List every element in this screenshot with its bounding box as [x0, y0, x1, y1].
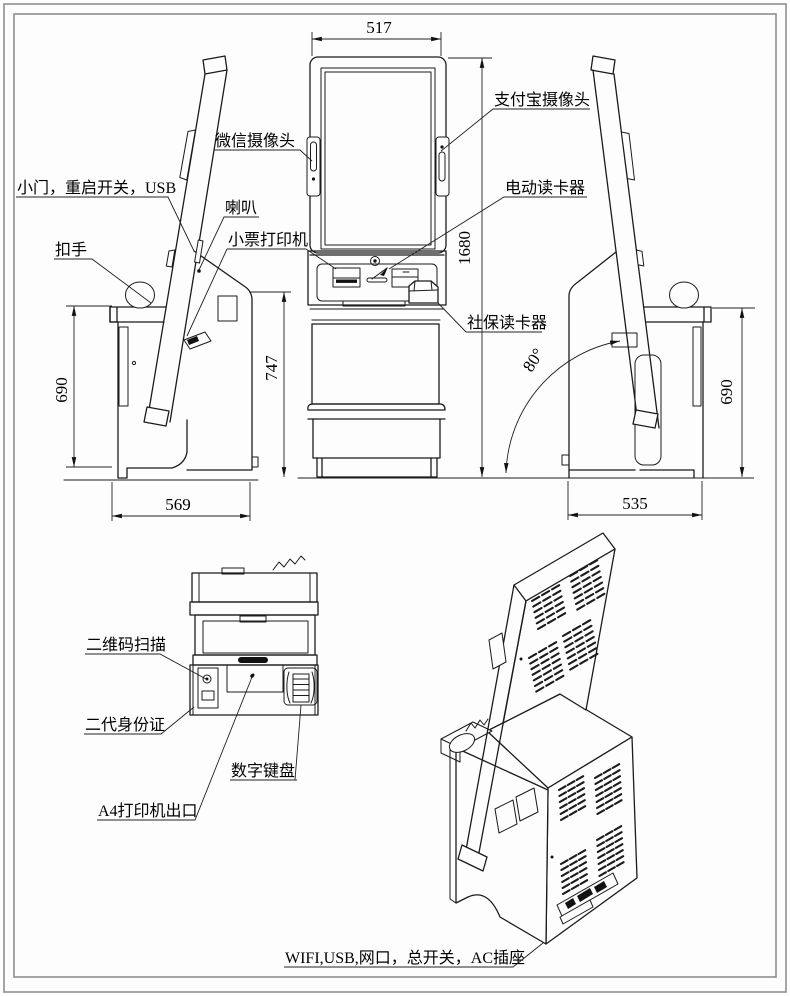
- left-console-shelf: [110, 307, 166, 322]
- label-speaker: 喇叭: [225, 199, 257, 217]
- callout-qr-scanner: 二维码扫描: [85, 636, 206, 679]
- iso-body-screw: [551, 856, 554, 859]
- right-screen-back-edge: [593, 70, 638, 424]
- leader-motor-card-reader: [389, 197, 587, 269]
- iso-body-left-edge: [450, 745, 456, 903]
- left-screen-bottom-cap: [144, 407, 169, 426]
- callout-keypad: 数字键盘: [230, 705, 301, 780]
- id-device-pad: [202, 691, 214, 700]
- callout-social-card-reader: 社保读卡器: [438, 303, 547, 332]
- dim-angle-value: 80°: [519, 345, 548, 375]
- social-reader-outline: [409, 281, 438, 303]
- top-rear-block: [192, 573, 317, 602]
- inner-border: [14, 14, 776, 977]
- label-receipt-printer: 小票打印机: [228, 231, 308, 249]
- alipay-camera-led: [440, 145, 443, 148]
- id-device-body: [198, 668, 218, 708]
- dim-535-value: 535: [622, 494, 648, 513]
- callout-alipay-camera: 支付宝摄像头: [441, 91, 590, 151]
- dim-517-value: 517: [366, 18, 392, 37]
- dim-690R-value: 690: [717, 379, 736, 405]
- leader-qr-scanner: [85, 654, 206, 679]
- front-plinth: [317, 458, 437, 477]
- top-dark-slot: [238, 657, 268, 663]
- callout-rear-ports: WIFI,USB,网口，总开关，AC插座: [284, 943, 543, 967]
- left-body-back: [187, 251, 252, 470]
- left-rear-knob: [252, 457, 258, 467]
- keypad-keys-area: [293, 674, 309, 702]
- front-screen: [325, 72, 431, 245]
- front-camera-pod-left: [307, 137, 320, 196]
- label-rear-ports: WIFI,USB,网口，总开关，AC插座: [285, 949, 525, 967]
- dim-569-value: 569: [165, 495, 191, 514]
- kiosk-drawing-svg: 517 1680 747 690 569 690 535 80° 小门，重启开关…: [0, 0, 790, 996]
- leader-a4-outlet: [97, 677, 252, 820]
- keypad-key-rows: [293, 679, 309, 696]
- isometric-view: [441, 533, 637, 944]
- outer-border: [4, 4, 786, 992]
- callout-id-card: 二代身份证: [84, 707, 194, 734]
- label-motor-card-reader: 电动读卡器: [505, 179, 585, 197]
- right-console-shelf: [644, 307, 711, 322]
- receipt-printer-front: [333, 268, 360, 287]
- top-band: [190, 602, 318, 615]
- leader-door-usb: [16, 197, 194, 251]
- label-a4-outlet: A4打印机出口: [98, 802, 198, 820]
- front-screen-bezel: [321, 68, 435, 249]
- top-rear-block-ends: [199, 573, 310, 602]
- keypad-flanges: [287, 672, 314, 703]
- a4-exit-area: [227, 665, 283, 692]
- front-base: [313, 419, 440, 458]
- left-screen-top-cap: [203, 56, 227, 74]
- left-side-view: [64, 56, 258, 480]
- iso-panel-screw: [520, 658, 523, 661]
- dim-690L-ext: [66, 306, 112, 467]
- motor-card-reader-front: [367, 267, 388, 282]
- drawing-sheet: 517 1680 747 690 569 690 535 80° 小门，重启开关…: [0, 0, 790, 996]
- left-receipt-printer-slot: [187, 336, 199, 345]
- keypad-device: [284, 668, 317, 705]
- wechat-camera-led: [312, 177, 315, 180]
- right-screen-bottom-cap: [633, 410, 658, 428]
- leader-wechat-camera: [214, 150, 312, 161]
- label-door-usb: 小门，重启开关，USB: [17, 179, 176, 197]
- receipt-paper-slot: [336, 280, 357, 283]
- front-cabinet: [310, 57, 446, 253]
- iso-body-front-face: [456, 748, 548, 944]
- iso-camera-pod: [489, 633, 506, 669]
- left-door-lock: [132, 361, 135, 364]
- top-printer-tray: [203, 621, 308, 653]
- left-speaker-box: [218, 296, 237, 321]
- label-handle: 扣手: [55, 241, 87, 259]
- right-handle: [670, 282, 699, 308]
- callout-a4-outlet: A4打印机出口: [97, 674, 254, 820]
- callout-wechat-camera: 微信摄像头: [214, 132, 312, 161]
- left-usb-door-strip: [195, 240, 203, 263]
- label-social-card-reader: 社保读卡器: [467, 314, 547, 332]
- label-keypad: 数字键盘: [231, 761, 295, 780]
- dim-690L-value: 690: [52, 377, 71, 403]
- right-side-view: [562, 56, 711, 478]
- id-card-device: [198, 668, 218, 708]
- right-camera-pod-profile: [621, 132, 634, 180]
- right-speaker-box: [612, 333, 637, 347]
- sheet-border: [4, 4, 786, 992]
- callout-door-usb: 小门，重启开关，USB: [16, 179, 194, 251]
- right-bracket-bump: [636, 250, 643, 266]
- label-alipay-camera: 支付宝摄像头: [494, 91, 590, 109]
- left-body-front: [110, 307, 187, 478]
- social-card-reader-device: [409, 281, 438, 303]
- right-screen-top-cap: [591, 56, 615, 74]
- label-wechat-camera: 微信摄像头: [215, 132, 295, 150]
- label-qr-scanner: 二维码扫描: [86, 636, 166, 654]
- top-detail-view: [190, 556, 318, 715]
- top-spring-clip: [273, 556, 305, 570]
- left-screen-front-edge: [148, 74, 205, 416]
- right-front-strip: [693, 327, 701, 406]
- card-lever-tip: [380, 267, 388, 276]
- dim-1680-value: 1680: [455, 231, 474, 265]
- left-camera-pod-profile: [180, 130, 196, 180]
- front-band-1: [310, 309, 444, 320]
- right-rear-knob: [562, 455, 569, 465]
- leader-speaker-dot: [197, 269, 201, 273]
- front-band-2: [308, 404, 445, 419]
- left-service-door: [119, 327, 128, 406]
- leader-a4-dot: [250, 674, 254, 678]
- dim-747-value: 747: [262, 355, 281, 381]
- leader-alipay-camera: [441, 109, 590, 151]
- front-door: [312, 324, 439, 404]
- console-camera-hole: [373, 259, 376, 262]
- label-id-card: 二代身份证: [85, 716, 165, 734]
- card-slot: [367, 278, 387, 282]
